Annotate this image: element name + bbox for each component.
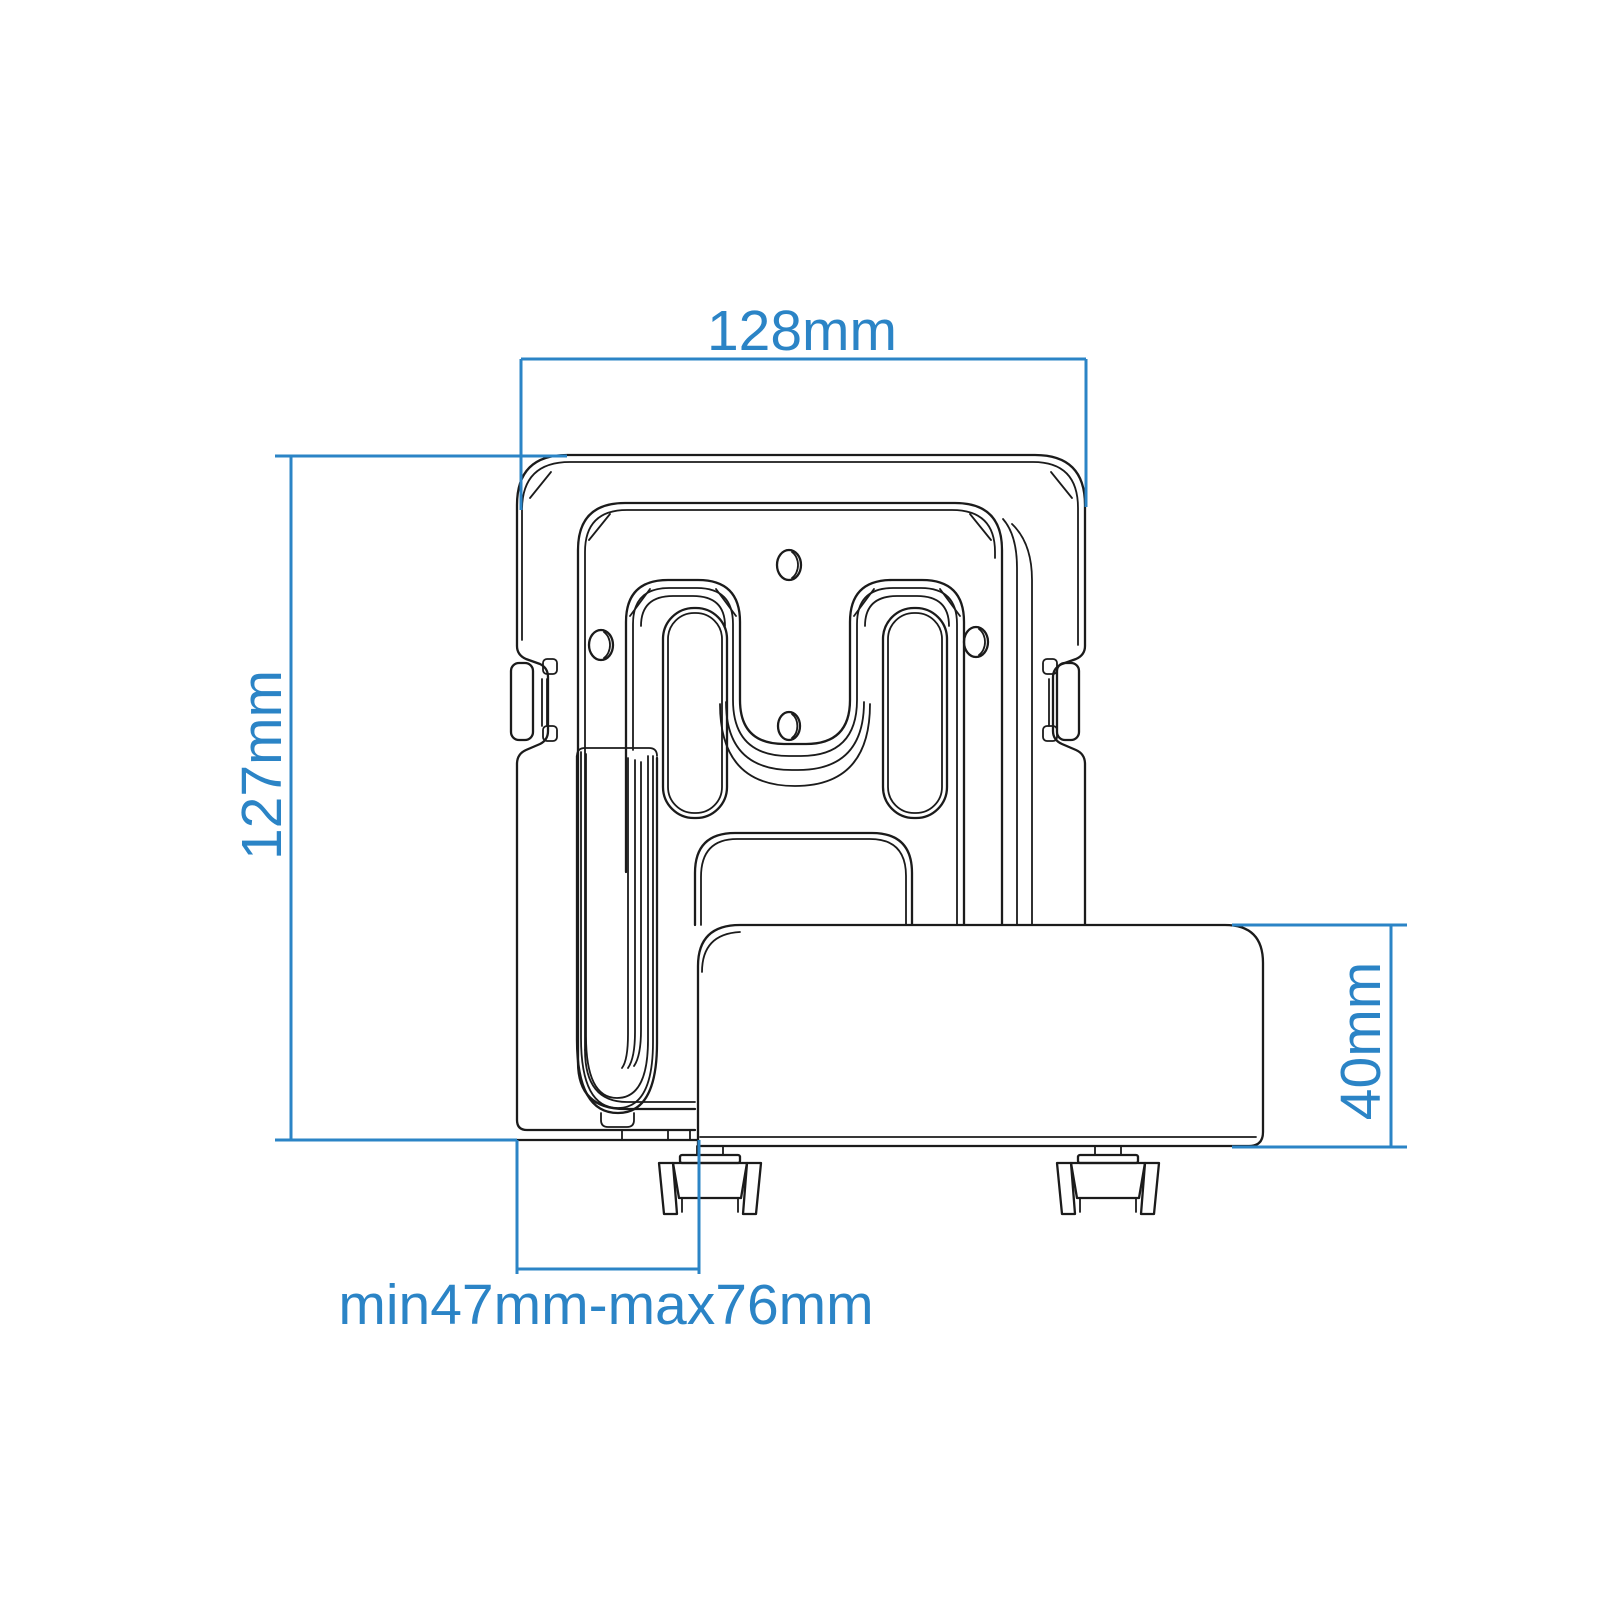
arm-inner-1 xyxy=(581,752,653,1108)
cable-arch xyxy=(695,833,912,925)
right-clip-tab xyxy=(1057,663,1079,740)
right-clip-strap xyxy=(1049,679,1053,726)
left-clip xyxy=(511,659,557,741)
left-clip-strap xyxy=(542,679,547,726)
right-slot-outer xyxy=(883,608,947,818)
right-slot-inner xyxy=(888,613,942,813)
plate-corner-diagonals xyxy=(589,514,991,540)
towers-bevel xyxy=(633,588,957,925)
plate-right-wall xyxy=(1003,519,1032,925)
hole-left-depth xyxy=(604,632,610,658)
hole-top-center-depth xyxy=(792,552,798,578)
arch-inner xyxy=(701,839,906,925)
slot-towers xyxy=(626,580,964,925)
arch-outer xyxy=(695,833,912,925)
dimension-depth-range: min47mm-max76mm xyxy=(338,1140,873,1337)
left-foot-stub xyxy=(697,1146,723,1155)
mount-dimension-diagram: 128mm 127mm 40mm min47mm-max76mm xyxy=(0,0,1600,1600)
depth-dim-label: min47mm-max76mm xyxy=(338,1273,873,1337)
arm-outer xyxy=(577,756,657,1113)
right-foot-fork xyxy=(1080,1198,1136,1212)
front-arm xyxy=(577,748,657,1127)
left-clip-tab xyxy=(511,663,533,740)
right-clip xyxy=(1043,659,1079,741)
left-slot-outer xyxy=(663,608,727,818)
screw-holes xyxy=(589,550,988,740)
device-box-outline xyxy=(698,925,1263,1146)
left-foot-yoke xyxy=(673,1163,747,1198)
arm-bottom-tab xyxy=(601,1113,634,1127)
right-foot-stub xyxy=(1095,1146,1121,1155)
right-foot-yoke xyxy=(1071,1163,1145,1198)
bottom-rail-ticks xyxy=(622,1130,690,1140)
dimension-drawing-page: 128mm 127mm 40mm min47mm-max76mm xyxy=(0,0,1600,1600)
device-height-dim-label: 40mm xyxy=(1329,962,1393,1120)
left-foot-plate xyxy=(680,1155,740,1163)
plate-bevel-bottom xyxy=(585,1050,695,1102)
arm-inner-2 xyxy=(586,754,648,1098)
right-foot-plate xyxy=(1078,1155,1138,1163)
left-foot-fork xyxy=(682,1198,738,1212)
device-box xyxy=(698,925,1263,1146)
arm-cap xyxy=(577,748,657,756)
hole-right-depth xyxy=(979,629,985,655)
height-dim-label: 127mm xyxy=(230,670,294,860)
width-dim-label: 128mm xyxy=(707,299,897,363)
left-foot xyxy=(659,1146,761,1214)
left-slot-inner xyxy=(668,613,722,813)
right-foot xyxy=(1057,1146,1159,1214)
towers-outline xyxy=(626,580,964,925)
dimension-width: 128mm xyxy=(521,299,1086,510)
